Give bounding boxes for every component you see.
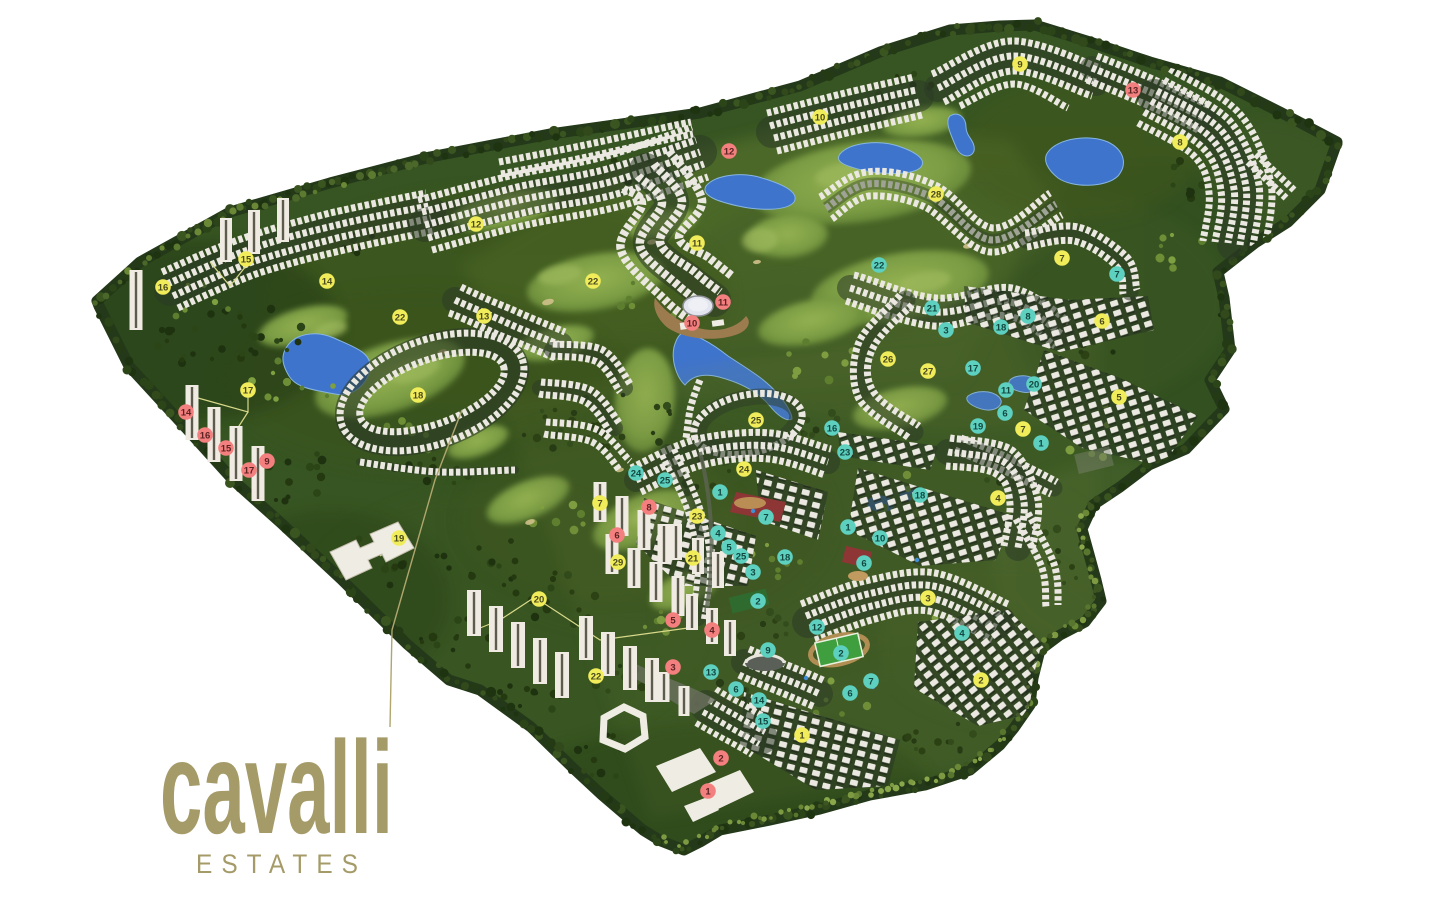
svg-text:24: 24	[739, 464, 750, 475]
svg-text:17: 17	[968, 363, 979, 374]
svg-text:3: 3	[925, 593, 930, 604]
svg-text:13: 13	[479, 311, 490, 322]
svg-text:16: 16	[827, 423, 838, 434]
svg-text:6: 6	[1099, 316, 1104, 327]
svg-text:2: 2	[755, 596, 760, 607]
svg-text:1: 1	[717, 487, 723, 498]
svg-text:10: 10	[815, 112, 826, 123]
svg-text:27: 27	[923, 366, 934, 377]
svg-text:5: 5	[1116, 392, 1122, 403]
svg-text:5: 5	[726, 542, 732, 553]
svg-text:6: 6	[861, 558, 866, 569]
svg-text:7: 7	[763, 512, 768, 523]
svg-text:7: 7	[868, 676, 873, 687]
svg-text:4: 4	[959, 628, 965, 639]
svg-text:29: 29	[613, 557, 624, 568]
svg-text:2: 2	[978, 675, 983, 686]
svg-text:8: 8	[1025, 311, 1030, 322]
svg-text:25: 25	[751, 415, 762, 426]
svg-text:13: 13	[706, 667, 717, 678]
svg-text:16: 16	[158, 282, 169, 293]
svg-text:26: 26	[883, 354, 894, 365]
svg-text:6: 6	[733, 684, 738, 695]
svg-text:10: 10	[875, 533, 886, 544]
svg-text:22: 22	[874, 260, 885, 271]
svg-text:14: 14	[181, 407, 192, 418]
svg-text:13: 13	[1128, 85, 1139, 96]
svg-text:12: 12	[812, 622, 823, 633]
svg-text:21: 21	[927, 303, 938, 314]
svg-text:19: 19	[394, 533, 405, 544]
svg-text:4: 4	[709, 625, 715, 636]
svg-text:8: 8	[646, 502, 651, 513]
svg-text:3: 3	[750, 567, 755, 578]
svg-text:20: 20	[1029, 379, 1040, 390]
svg-text:17: 17	[243, 385, 254, 396]
svg-text:3: 3	[943, 325, 948, 336]
svg-text:18: 18	[780, 552, 791, 563]
svg-text:19: 19	[973, 421, 984, 432]
svg-text:15: 15	[758, 716, 769, 727]
svg-text:1: 1	[845, 522, 851, 533]
svg-text:17: 17	[244, 465, 255, 476]
svg-text:4: 4	[995, 493, 1001, 504]
svg-text:21: 21	[688, 553, 699, 564]
svg-text:23: 23	[692, 511, 703, 522]
svg-text:11: 11	[692, 238, 703, 249]
svg-text:11: 11	[1001, 385, 1012, 396]
svg-text:25: 25	[736, 551, 747, 562]
svg-text:6: 6	[847, 688, 852, 699]
svg-text:9: 9	[765, 645, 770, 656]
svg-text:10: 10	[687, 318, 698, 329]
svg-text:22: 22	[588, 276, 599, 287]
svg-text:15: 15	[221, 443, 232, 454]
svg-text:11: 11	[718, 297, 729, 308]
svg-text:6: 6	[1002, 408, 1007, 419]
svg-text:2: 2	[718, 753, 723, 764]
svg-text:25: 25	[660, 475, 671, 486]
svg-text:5: 5	[670, 615, 676, 626]
svg-text:12: 12	[471, 219, 482, 230]
svg-text:7: 7	[1114, 269, 1119, 280]
svg-text:18: 18	[413, 390, 424, 401]
svg-text:6: 6	[614, 530, 619, 541]
svg-text:16: 16	[200, 430, 211, 441]
svg-text:9: 9	[1017, 59, 1022, 70]
svg-text:20: 20	[534, 594, 545, 605]
svg-text:18: 18	[915, 490, 926, 501]
svg-text:18: 18	[996, 322, 1007, 333]
svg-text:7: 7	[597, 498, 602, 509]
svg-text:1: 1	[799, 730, 805, 741]
svg-text:3: 3	[670, 662, 675, 673]
svg-text:2: 2	[838, 648, 843, 659]
svg-text:12: 12	[724, 146, 735, 157]
svg-text:22: 22	[395, 312, 406, 323]
svg-text:15: 15	[241, 254, 252, 265]
svg-text:23: 23	[840, 447, 851, 458]
svg-text:4: 4	[715, 528, 721, 539]
svg-text:28: 28	[931, 189, 942, 200]
svg-text:14: 14	[322, 276, 333, 287]
svg-text:14: 14	[754, 695, 765, 706]
svg-text:9: 9	[264, 456, 269, 467]
svg-text:8: 8	[1177, 137, 1182, 148]
svg-text:1: 1	[705, 786, 711, 797]
svg-text:22: 22	[591, 671, 602, 682]
svg-text:1: 1	[1038, 438, 1044, 449]
svg-text:cavalli: cavalli	[160, 714, 393, 861]
svg-text:24: 24	[631, 468, 642, 479]
svg-text:7: 7	[1020, 424, 1025, 435]
svg-text:ESTATES: ESTATES	[196, 849, 367, 879]
svg-text:7: 7	[1059, 253, 1064, 264]
